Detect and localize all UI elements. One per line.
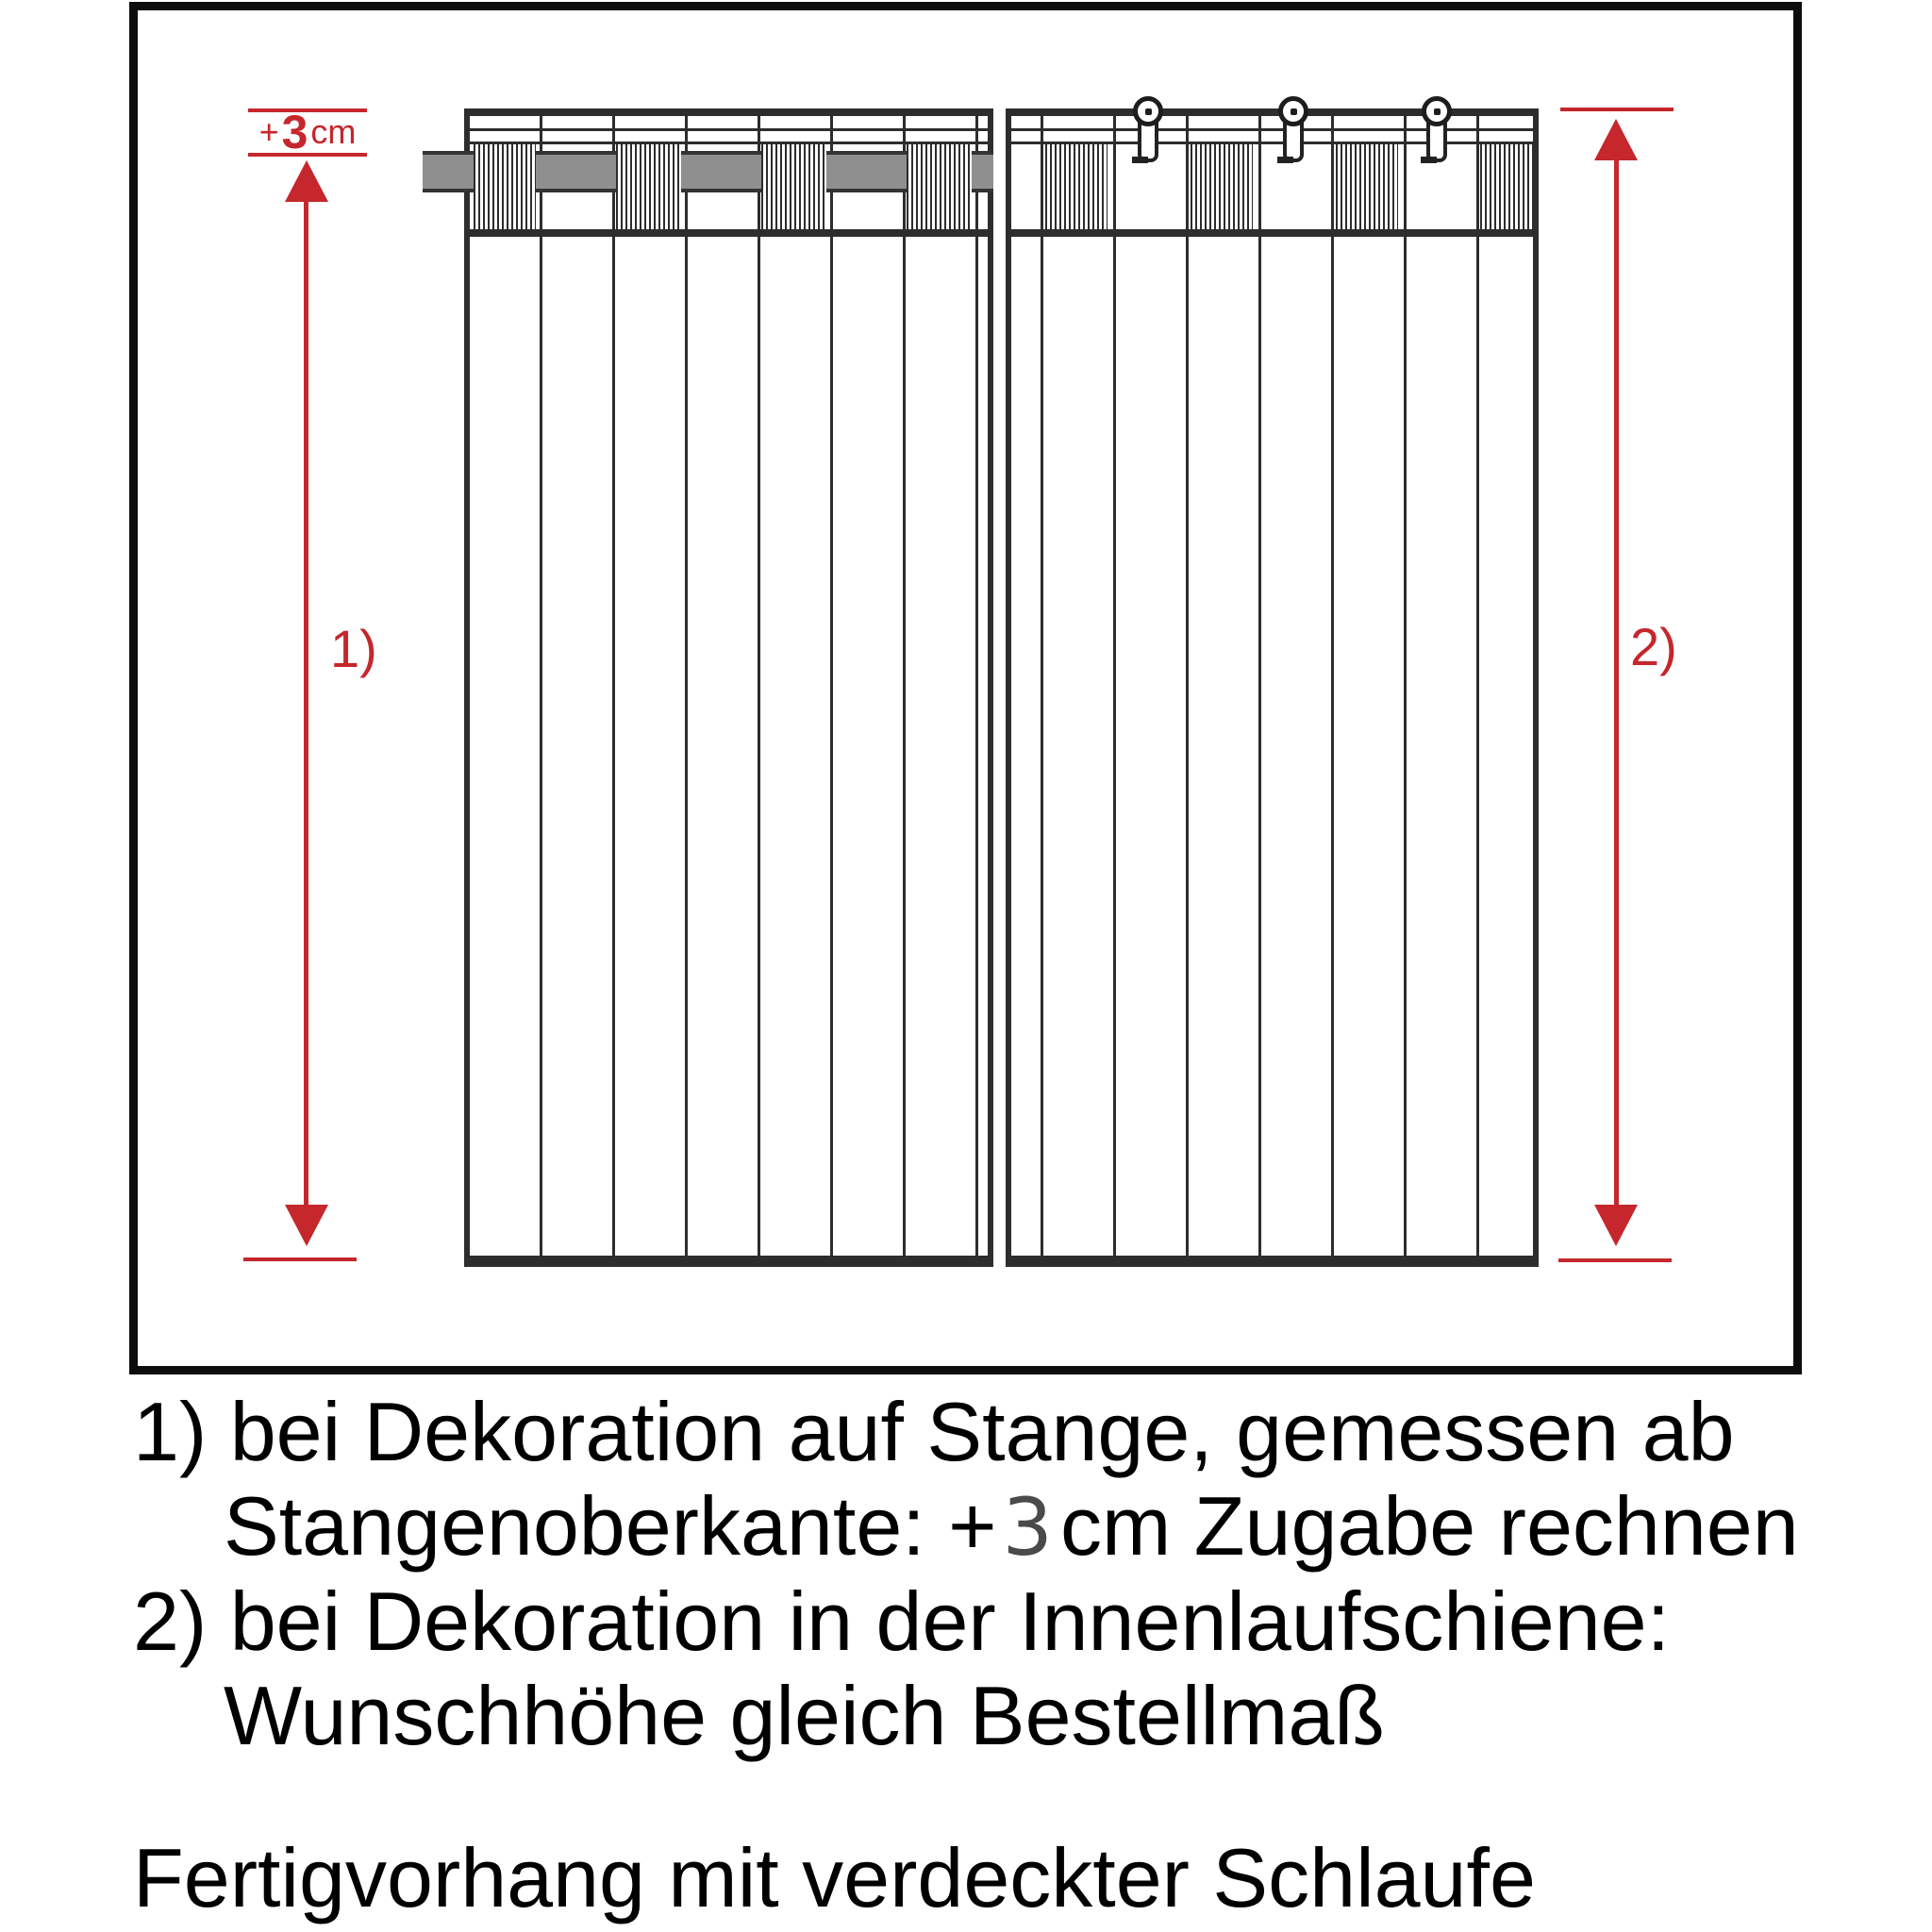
curtain-left-panel bbox=[464, 108, 993, 1267]
fold-lines-left bbox=[470, 116, 988, 1256]
note-line-4: Wunschhöhe gleich Bestellmaß bbox=[133, 1669, 1907, 1763]
roller-pin-icon bbox=[1434, 108, 1441, 115]
hidden-loop-hatch bbox=[761, 144, 826, 229]
note-line-2-value: 3 bbox=[997, 1481, 1060, 1574]
fold-lines-right bbox=[1011, 116, 1533, 1256]
arrow2-start-tick bbox=[1560, 108, 1674, 111]
arrow1-line bbox=[304, 198, 308, 1207]
roller-pin-icon bbox=[1145, 108, 1152, 115]
arrow2-label: 2) bbox=[1630, 616, 1677, 677]
arrow2-line bbox=[1614, 157, 1619, 1207]
allowance-label: +3cm bbox=[248, 110, 367, 154]
note-line-2: Stangenoberkante: +3cm Zugabe rechnen bbox=[133, 1479, 1907, 1574]
hidden-loop-hatch bbox=[1191, 144, 1253, 229]
allowance-unit: cm bbox=[310, 112, 356, 152]
arrow1-end-tick bbox=[243, 1257, 357, 1261]
note-line-5: Fertigvorhang mit verdeckter Schlaufe bbox=[133, 1831, 1907, 1925]
arrow2-up-icon bbox=[1594, 119, 1638, 160]
header-bottom-line bbox=[1011, 229, 1533, 237]
curtain-measurement-diagram: +3cm 1) 2) 1) bei Dekoration auf Stange,… bbox=[0, 0, 1932, 1932]
allowance-value: 3 bbox=[282, 105, 308, 159]
roller-pin-icon bbox=[1291, 108, 1297, 115]
header-bottom-line bbox=[470, 229, 988, 237]
hidden-loop-hatch bbox=[616, 144, 681, 229]
note-line-1: 1) bei Dekoration auf Stange, gemessen a… bbox=[133, 1385, 1907, 1479]
note-line-2-suffix: cm Zugabe rechnen bbox=[1060, 1479, 1799, 1573]
arrow2-end-tick bbox=[1558, 1258, 1672, 1262]
hidden-loop-hatch bbox=[1480, 144, 1533, 229]
hidden-loop-hatch bbox=[907, 144, 972, 229]
roller-foot bbox=[1421, 157, 1437, 163]
arrow2-down-icon bbox=[1594, 1205, 1638, 1246]
header-seam-line bbox=[470, 128, 988, 131]
roller-foot bbox=[1132, 157, 1148, 163]
header-seam-line bbox=[1011, 128, 1533, 131]
allowance-rule-bottom bbox=[248, 153, 367, 157]
arrow1-down-icon bbox=[285, 1205, 328, 1246]
arrow1-up-icon bbox=[285, 160, 328, 202]
caption-notes: 1) bei Dekoration auf Stange, gemessen a… bbox=[133, 1385, 1907, 1925]
note-line-2-prefix: Stangenoberkante: + bbox=[224, 1479, 997, 1573]
hidden-loop-hatch bbox=[1045, 144, 1108, 229]
hidden-loop-hatch bbox=[1336, 144, 1398, 229]
roller-foot bbox=[1277, 157, 1293, 163]
note-line-3: 2) bei Dekoration in der Innenlaufschien… bbox=[133, 1574, 1907, 1669]
allowance-plus: + bbox=[259, 112, 279, 152]
curtain-right-panel bbox=[1006, 108, 1539, 1267]
hidden-loop-hatch bbox=[474, 144, 536, 229]
arrow1-label: 1) bbox=[330, 618, 377, 679]
